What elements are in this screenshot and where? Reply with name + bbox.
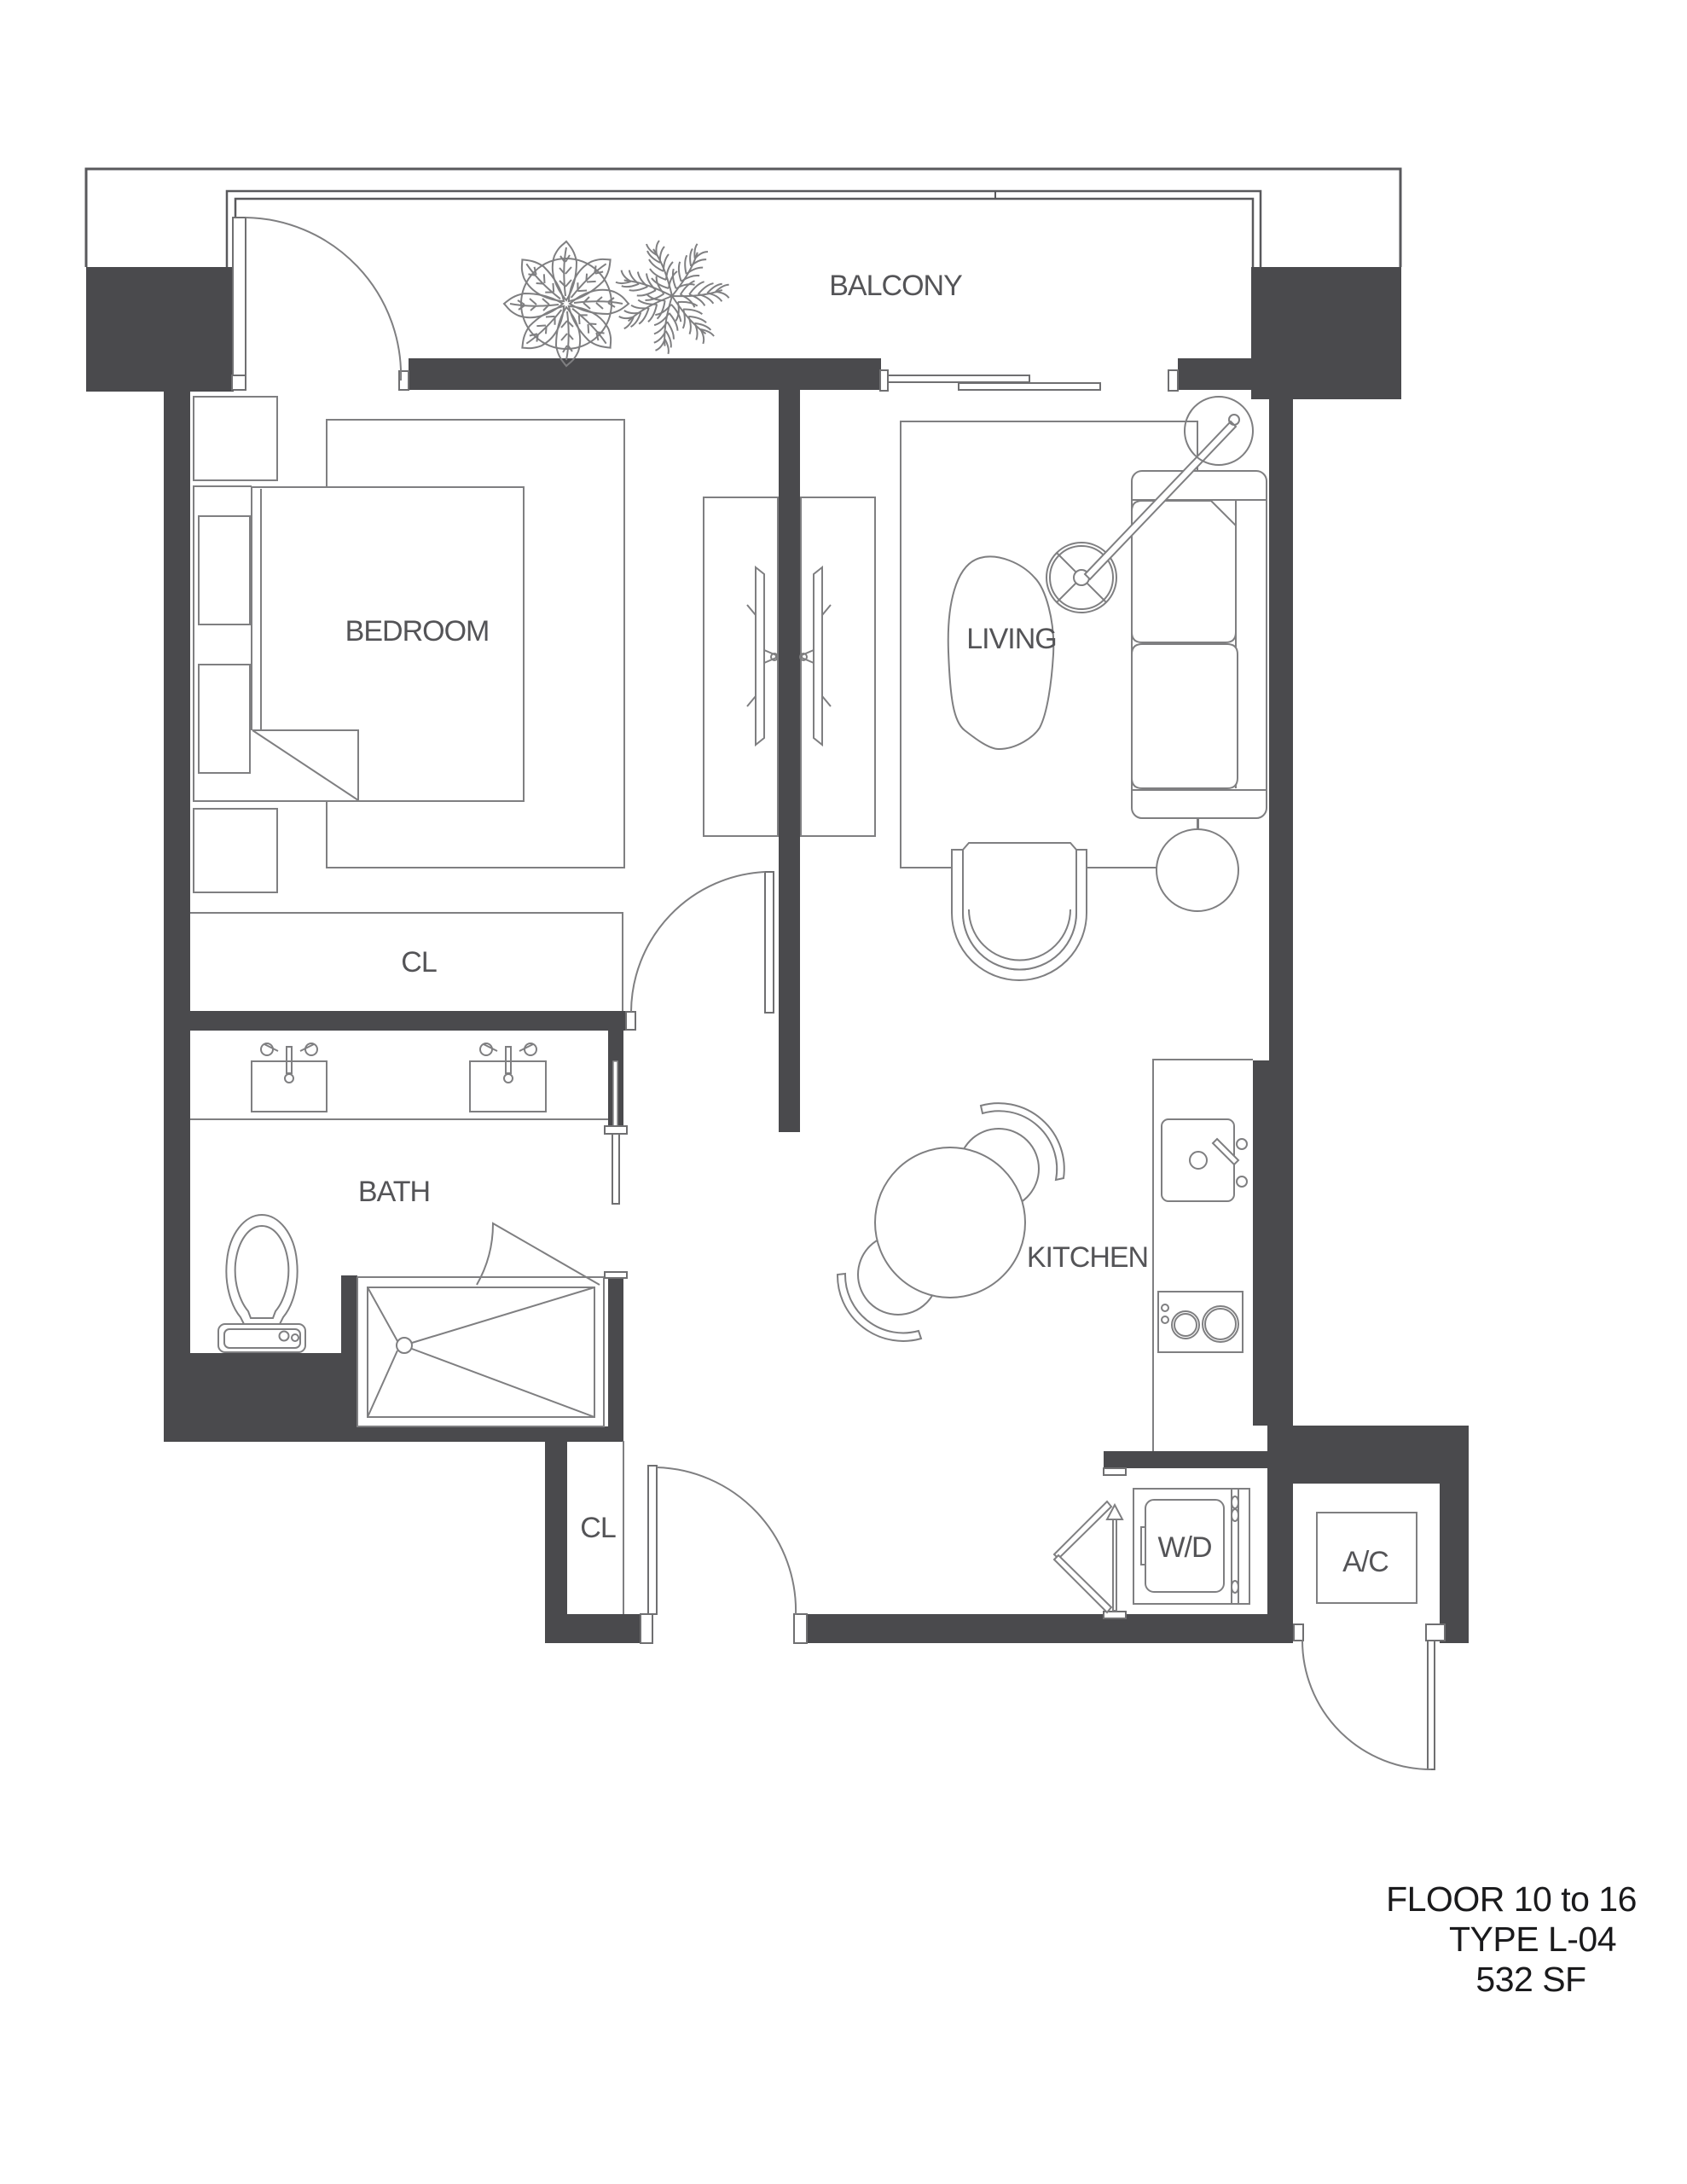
svg-text:LIVING: LIVING xyxy=(966,623,1056,655)
svg-text:CL: CL xyxy=(401,946,437,979)
svg-text:532 SF: 532 SF xyxy=(1475,1960,1586,1999)
svg-text:BALCONY: BALCONY xyxy=(829,270,962,302)
svg-text:A/C: A/C xyxy=(1342,1546,1388,1578)
svg-text:FLOOR 10 to 16: FLOOR 10 to 16 xyxy=(1386,1879,1637,1919)
svg-text:KITCHEN: KITCHEN xyxy=(1027,1241,1148,1274)
svg-text:BEDROOM: BEDROOM xyxy=(345,615,490,648)
svg-text:TYPE L-04: TYPE L-04 xyxy=(1449,1920,1616,1959)
svg-text:W/D: W/D xyxy=(1157,1531,1211,1564)
svg-text:BATH: BATH xyxy=(358,1176,430,1208)
svg-text:CL: CL xyxy=(580,1512,616,1544)
